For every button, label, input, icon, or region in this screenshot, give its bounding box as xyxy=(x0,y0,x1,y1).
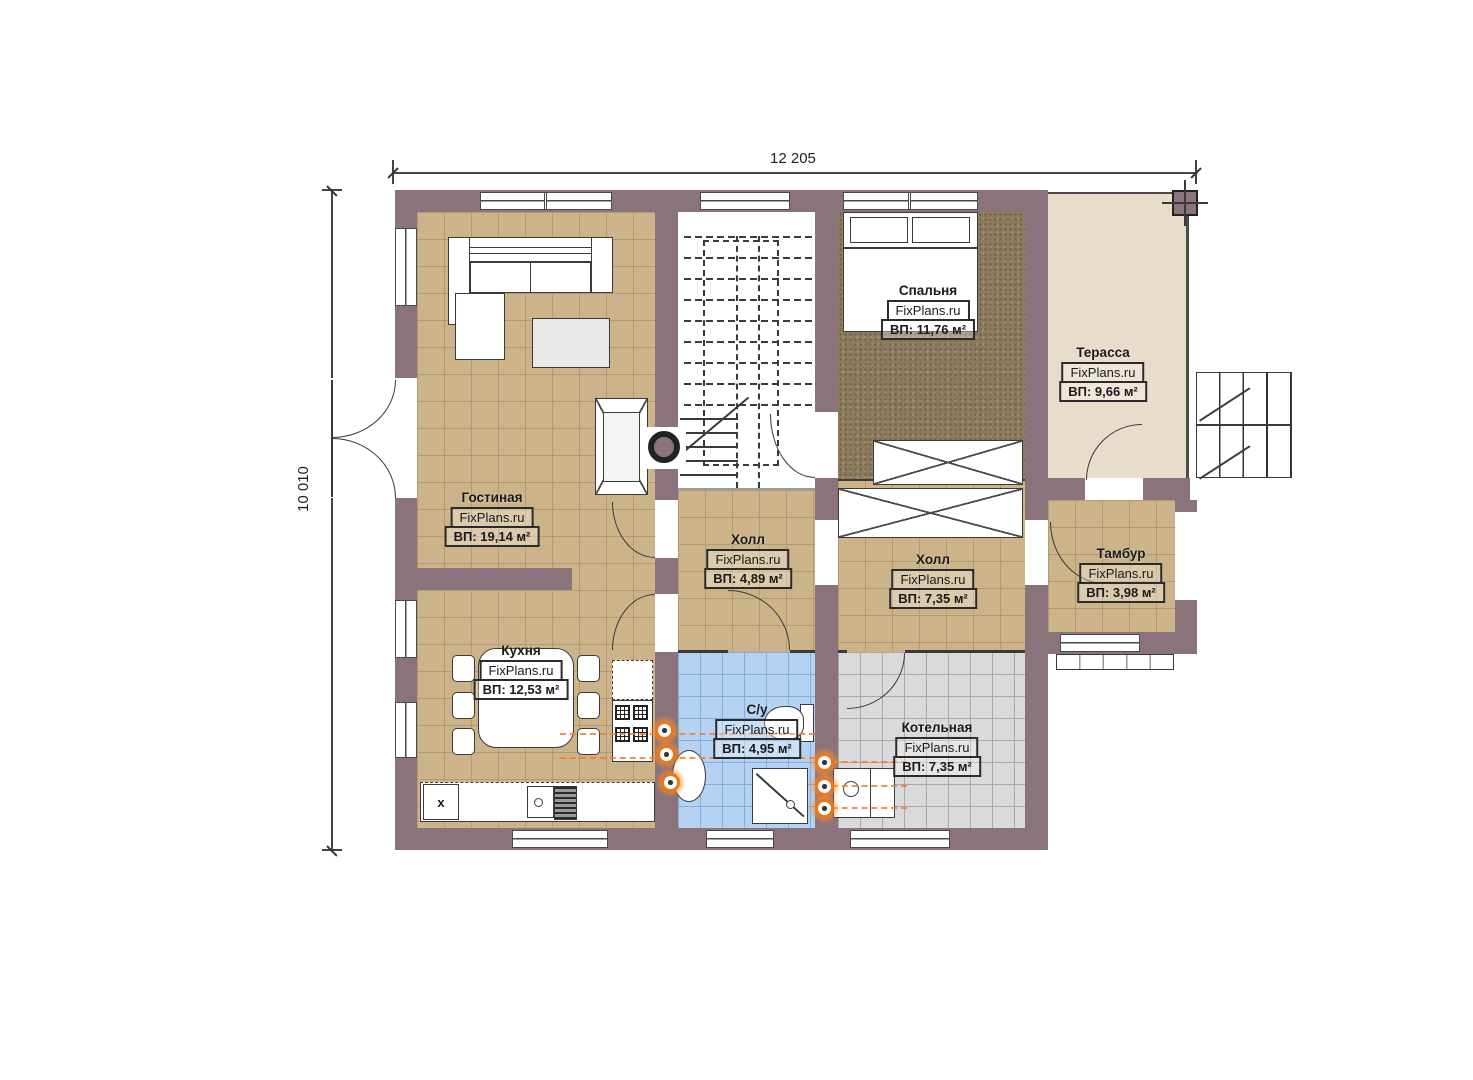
porch-steps xyxy=(1056,654,1174,670)
counter-upper xyxy=(612,660,653,700)
room-name: Кухня xyxy=(501,643,540,658)
partition-hall-bath xyxy=(678,650,728,653)
pillow xyxy=(912,217,970,243)
window-boiler-bottom xyxy=(850,830,950,848)
sofa-armrest-right xyxy=(591,237,613,293)
room-area: ВП: 7,35 м² xyxy=(893,756,981,777)
fridge-marker: x xyxy=(423,784,459,820)
chair xyxy=(452,655,475,682)
partition-hall-boiler xyxy=(838,650,847,653)
sink-drain xyxy=(534,798,543,807)
watermark: FixPlans.ru xyxy=(715,719,798,740)
chair xyxy=(452,692,475,719)
dimension-height-line xyxy=(331,190,333,850)
room-name: Холл xyxy=(916,552,950,567)
watermark: FixPlans.ru xyxy=(706,549,789,570)
stove-burner xyxy=(615,705,630,720)
watermark: FixPlans.ru xyxy=(895,737,978,758)
watermark: FixPlans.ru xyxy=(891,569,974,590)
chair xyxy=(577,655,600,682)
chimney-flue xyxy=(648,431,680,463)
plumbing-riser xyxy=(815,777,834,796)
watermark: FixPlans.ru xyxy=(886,300,969,321)
window-kitchen-left-2 xyxy=(395,702,417,758)
partition-stair-hall xyxy=(678,488,815,490)
room-name: Тамбур xyxy=(1097,546,1146,561)
entrance-door-opening xyxy=(1175,512,1197,600)
room-name: С/у xyxy=(746,702,767,717)
dishwasher xyxy=(554,786,577,820)
partition-hall-bath xyxy=(790,650,815,653)
coffee-table xyxy=(532,318,610,368)
room-name: Спальня xyxy=(899,283,957,298)
watermark: FixPlans.ru xyxy=(1061,362,1144,383)
window-bathroom-bottom xyxy=(706,830,774,848)
french-door-opening xyxy=(395,378,417,498)
room-area: ВП: 4,95 м² xyxy=(713,738,801,759)
sofa-chaise xyxy=(455,293,505,360)
stove-burner xyxy=(633,705,648,720)
door-opening-living-hall xyxy=(655,500,678,558)
window-vestibule-bottom xyxy=(1060,634,1140,652)
room-label-bedroom: Спальня FixPlans.ru ВП: 11,76 м² xyxy=(881,283,975,340)
plumbing-riser xyxy=(815,753,834,772)
stair-stringer xyxy=(758,236,760,488)
room-name: Холл xyxy=(731,532,765,547)
room-area: ВП: 9,66 м² xyxy=(1059,381,1147,402)
room-name: Терасса xyxy=(1076,345,1130,360)
room-area: ВП: 7,35 м² xyxy=(889,588,977,609)
room-area: ВП: 11,76 м² xyxy=(881,319,975,340)
dimension-width-line xyxy=(393,172,1197,174)
room-label-hall-1: Холл FixPlans.ru ВП: 4,89 м² xyxy=(704,532,792,589)
plumbing-riser xyxy=(655,721,674,740)
window-living-left xyxy=(395,228,417,306)
blanket-edge xyxy=(843,247,978,249)
plumbing-riser xyxy=(815,799,834,818)
pillow xyxy=(850,217,908,243)
chair xyxy=(452,728,475,755)
watermark: FixPlans.ru xyxy=(479,660,562,681)
room-area: ВП: 4,89 м² xyxy=(704,568,792,589)
room-area: ВП: 3,98 м² xyxy=(1077,582,1165,603)
stair-stringer xyxy=(736,236,738,488)
watermark: FixPlans.ru xyxy=(450,507,533,528)
room-label-boiler: Котельная FixPlans.ru ВП: 7,35 м² xyxy=(893,720,981,777)
fireplace-inner xyxy=(603,412,640,482)
plumbing-riser xyxy=(661,773,680,792)
shower-drain xyxy=(786,800,795,809)
plumbing-line xyxy=(822,785,907,787)
chair xyxy=(577,692,600,719)
dimension-width-label: 12 205 xyxy=(770,150,816,167)
boiler-dial xyxy=(843,781,859,797)
door-opening-hall2-vestibule xyxy=(1025,520,1048,585)
partition-hall-boiler xyxy=(905,650,1025,653)
window-mullion xyxy=(908,192,911,210)
wall-living-kitchen xyxy=(417,568,572,590)
wardrobe-1 xyxy=(873,440,1023,485)
window-mullion xyxy=(544,192,547,210)
door-opening-terrace xyxy=(1085,478,1143,500)
window-stair-top xyxy=(700,192,790,210)
boiler-unit xyxy=(833,768,895,818)
door-opening-stair-bedroom xyxy=(815,412,838,478)
dimension-height-label: 10 010 xyxy=(295,466,312,512)
room-label-vestibule: Тамбур FixPlans.ru ВП: 3,98 м² xyxy=(1077,546,1165,603)
fridge-marker-label: x xyxy=(437,795,444,810)
column-axis-v xyxy=(1184,180,1186,226)
watermark: FixPlans.ru xyxy=(1079,563,1162,584)
exterior-stairs-centerline xyxy=(1196,424,1292,426)
door-opening-hall1-hall2 xyxy=(815,520,838,585)
plumbing-line xyxy=(822,807,907,809)
room-label-hall-2: Холл FixPlans.ru ВП: 7,35 м² xyxy=(889,552,977,609)
wardrobe-2 xyxy=(838,488,1023,538)
window-kitchen-left-1 xyxy=(395,600,417,658)
room-label-kitchen: Кухня FixPlans.ru ВП: 12,53 м² xyxy=(474,643,569,700)
room-label-bathroom: С/у FixPlans.ru ВП: 4,95 м² xyxy=(713,702,801,759)
room-area: ВП: 19,14 м² xyxy=(445,526,540,547)
room-name: Котельная xyxy=(902,720,973,735)
sofa-back xyxy=(448,237,613,262)
room-area: ВП: 12,53 м² xyxy=(474,679,569,700)
window-kitchen-bottom xyxy=(512,830,608,848)
floor-plan-canvas: 12 205 10 010 xyxy=(0,0,1473,1080)
room-label-living: Гостиная FixPlans.ru ВП: 19,14 м² xyxy=(445,490,540,547)
plumbing-riser xyxy=(657,745,676,764)
door-opening-kitchen-hall xyxy=(655,594,678,652)
room-label-terrace: Терасса FixPlans.ru ВП: 9,66 м² xyxy=(1059,345,1147,402)
stair-flight-outline xyxy=(703,240,779,466)
room-name: Гостиная xyxy=(461,490,522,505)
sofa-seats xyxy=(470,262,591,293)
